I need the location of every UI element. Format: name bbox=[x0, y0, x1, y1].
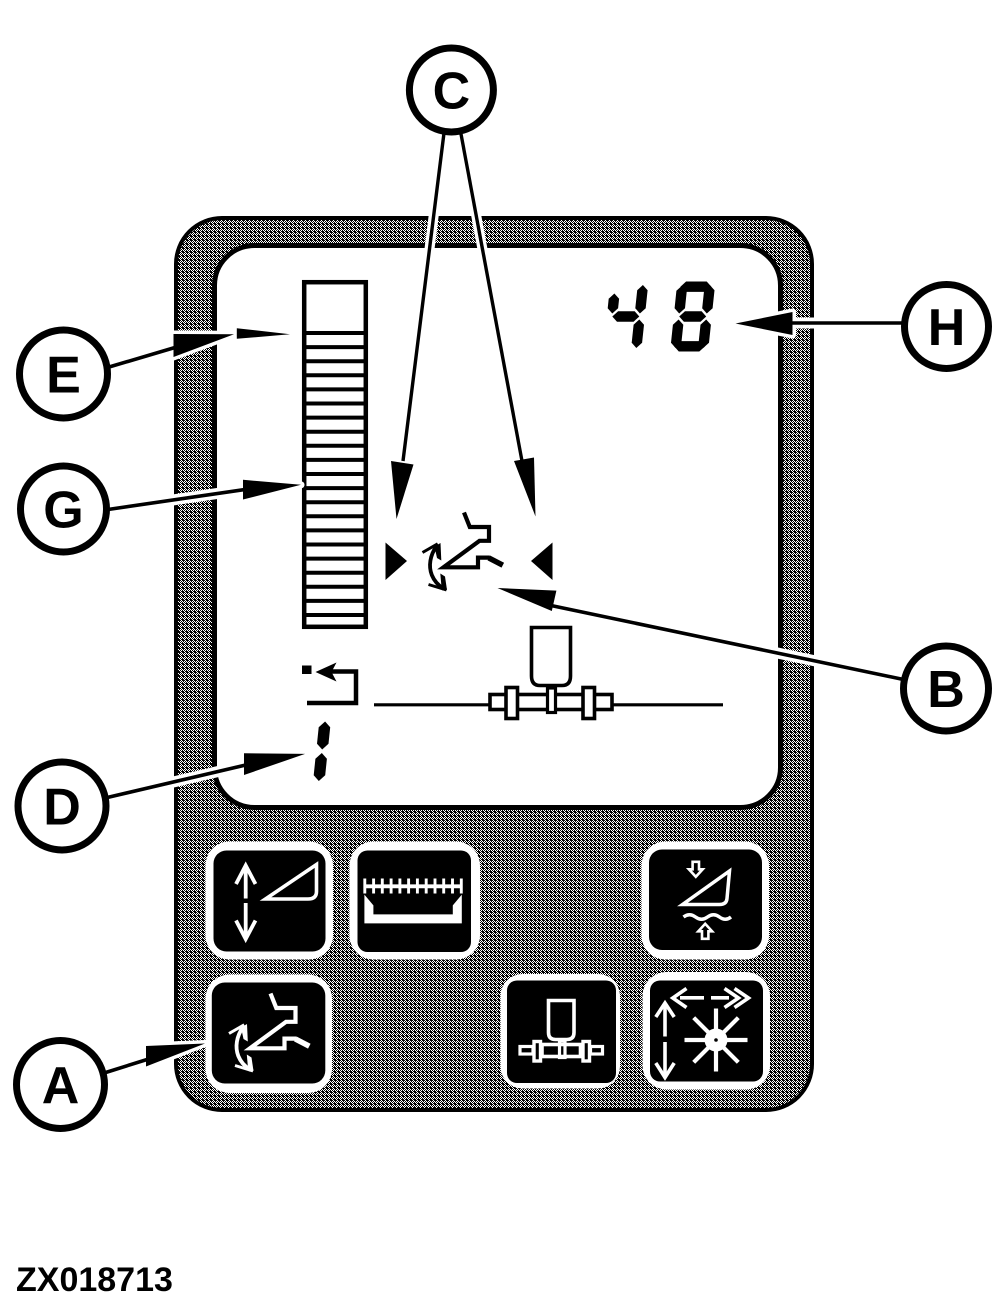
svg-text:H: H bbox=[928, 299, 966, 357]
svg-text:B: B bbox=[927, 661, 965, 719]
svg-text:ZX018713: ZX018713 bbox=[16, 1261, 173, 1299]
svg-text:C: C bbox=[433, 63, 471, 121]
svg-text:E: E bbox=[46, 347, 81, 405]
svg-text:G: G bbox=[43, 482, 83, 540]
svg-text:D: D bbox=[43, 779, 81, 837]
svg-text:A: A bbox=[42, 1057, 80, 1115]
